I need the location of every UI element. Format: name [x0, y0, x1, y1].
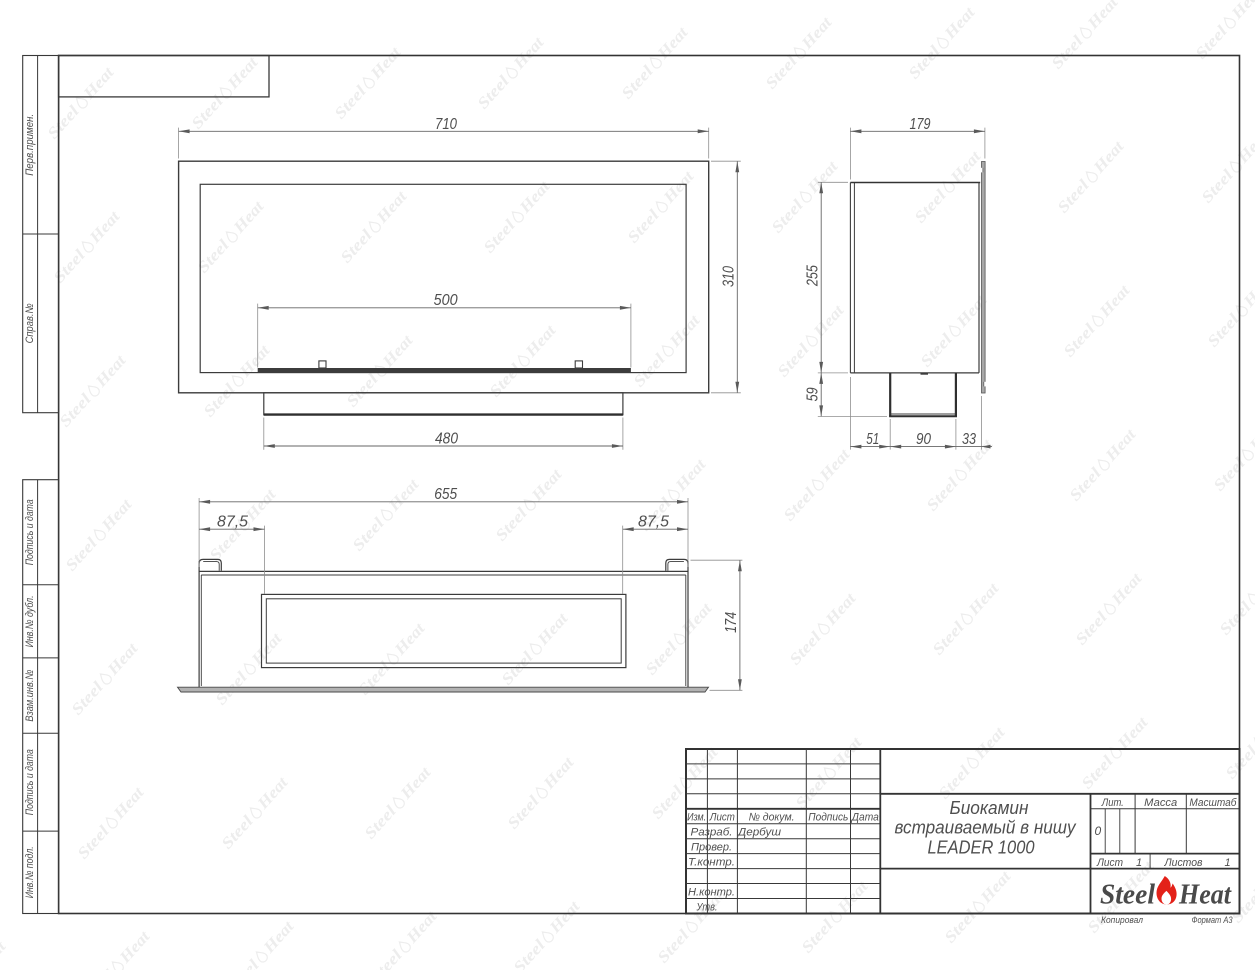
- svg-text:Лист: Лист: [1096, 857, 1123, 869]
- svg-text:179: 179: [910, 116, 931, 133]
- svg-text:Лист: Лист: [709, 812, 735, 824]
- svg-text:Подпись: Подпись: [808, 812, 848, 824]
- svg-text:1: 1: [1136, 857, 1142, 869]
- svg-text:310: 310: [721, 266, 738, 287]
- svg-text:№ докум.: № докум.: [749, 812, 795, 824]
- svg-text:51: 51: [866, 431, 879, 448]
- svg-text:710: 710: [435, 116, 457, 133]
- svg-text:Дербуш: Дербуш: [736, 827, 781, 839]
- svg-text:500: 500: [434, 292, 458, 309]
- svg-text:Подпись и дата: Подпись и дата: [24, 499, 36, 565]
- svg-text:Копировал: Копировал: [1101, 915, 1144, 926]
- svg-text:Провер.: Провер.: [691, 842, 732, 854]
- svg-text:Листов: Листов: [1164, 857, 1203, 869]
- svg-text:59: 59: [805, 387, 822, 401]
- svg-text:255: 255: [805, 265, 822, 287]
- svg-text:33: 33: [962, 431, 976, 448]
- svg-text:174: 174: [723, 612, 740, 633]
- svg-text:Steel: Steel: [1100, 880, 1155, 911]
- svg-text:Перв.примен.: Перв.примен.: [24, 114, 36, 176]
- svg-text:87,5: 87,5: [638, 513, 669, 530]
- svg-text:Справ.№: Справ.№: [24, 303, 36, 343]
- svg-text:Масса: Масса: [1144, 797, 1177, 809]
- svg-text:Дата: Дата: [850, 812, 879, 824]
- svg-text:Разраб.: Разраб.: [691, 827, 733, 839]
- svg-text:Инв.№ подл.: Инв.№ подл.: [24, 846, 36, 898]
- svg-text:Н.контр.: Н.контр.: [688, 886, 735, 898]
- svg-text:встраиваемый в нишу: встраиваемый в нишу: [895, 817, 1077, 837]
- svg-text:Формат A3: Формат A3: [1192, 915, 1234, 926]
- svg-text:Биокамин: Биокамин: [950, 798, 1029, 818]
- svg-text:LEADER 1000: LEADER 1000: [928, 838, 1035, 858]
- svg-text:0: 0: [1095, 824, 1102, 838]
- svg-text:655: 655: [434, 486, 457, 503]
- svg-text:87,5: 87,5: [217, 513, 248, 530]
- svg-text:90: 90: [916, 431, 931, 448]
- svg-text:480: 480: [435, 430, 458, 447]
- svg-text:Масштаб: Масштаб: [1189, 797, 1237, 809]
- svg-text:Взам.инв.№: Взам.инв.№: [24, 670, 36, 722]
- svg-text:Подпись и дата: Подпись и дата: [24, 749, 36, 815]
- svg-text:Утв.: Утв.: [696, 901, 718, 913]
- svg-text:Т.контр.: Т.контр.: [688, 857, 735, 869]
- svg-text:Heat: Heat: [1178, 880, 1232, 911]
- svg-text:1: 1: [1224, 857, 1230, 869]
- svg-text:Изм.: Изм.: [687, 812, 706, 824]
- svg-text:Инв.№ дубл.: Инв.№ дубл.: [24, 595, 36, 647]
- svg-text:Лит.: Лит.: [1101, 797, 1124, 809]
